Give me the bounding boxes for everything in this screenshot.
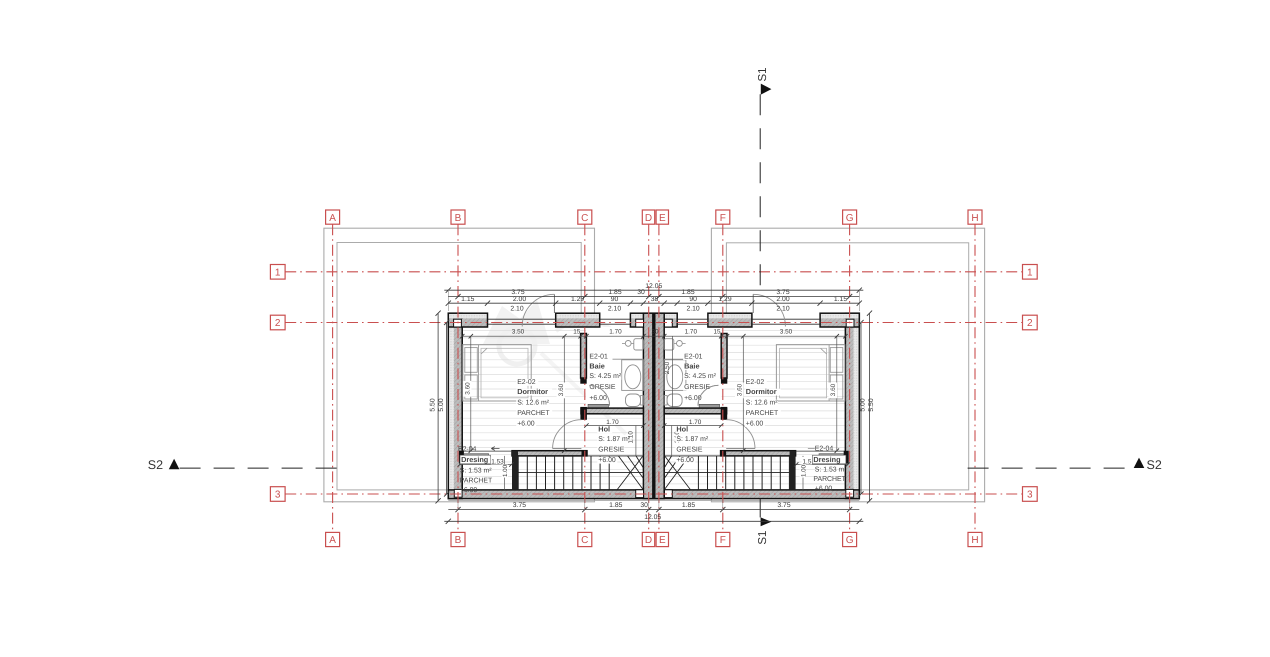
svg-text:90: 90 (611, 296, 619, 303)
svg-text:2.00: 2.00 (776, 296, 789, 303)
svg-text:+6.00: +6.00 (676, 457, 694, 464)
svg-text:3: 3 (275, 490, 281, 501)
svg-text:30: 30 (637, 289, 645, 296)
svg-text:S2: S2 (1147, 458, 1162, 472)
svg-text:+6.00: +6.00 (589, 395, 607, 402)
svg-text:5.00: 5.00 (438, 398, 445, 411)
svg-text:3.60: 3.60 (830, 383, 837, 396)
svg-text:S: 1.87 m²: S: 1.87 m² (598, 436, 630, 443)
svg-text:5.50: 5.50 (868, 398, 875, 411)
svg-text:E2-02: E2-02 (746, 379, 765, 386)
svg-text:Hol: Hol (676, 425, 688, 434)
svg-text:A: A (329, 213, 336, 224)
svg-text:1.85: 1.85 (609, 502, 622, 509)
svg-text:PARCHET: PARCHET (517, 410, 550, 417)
svg-text:D: D (645, 535, 652, 546)
svg-text:2.50: 2.50 (664, 361, 671, 374)
svg-text:2.10: 2.10 (510, 305, 523, 312)
svg-text:S: 12.6 m²: S: 12.6 m² (517, 400, 549, 407)
svg-text:+6.00: +6.00 (517, 420, 535, 427)
svg-text:15: 15 (573, 328, 581, 335)
svg-text:E2-04: E2-04 (458, 446, 477, 453)
svg-text:S2: S2 (148, 458, 163, 472)
svg-text:E: E (659, 535, 666, 546)
svg-text:38: 38 (651, 296, 659, 303)
svg-text:B: B (455, 535, 462, 546)
svg-text:1.70: 1.70 (689, 419, 702, 426)
svg-text:S: 1.87 m²: S: 1.87 m² (676, 436, 708, 443)
svg-text:GRESIE: GRESIE (676, 447, 702, 454)
svg-text:+6.00: +6.00 (598, 457, 616, 464)
svg-text:30: 30 (651, 328, 659, 335)
svg-text:2: 2 (1027, 318, 1033, 329)
svg-text:3.75: 3.75 (777, 502, 790, 509)
svg-text:E2-01: E2-01 (684, 353, 703, 360)
svg-text:S: 1.53 m²: S: 1.53 m² (460, 468, 492, 475)
svg-text:C: C (581, 535, 588, 546)
svg-text:Baie: Baie (589, 361, 604, 370)
svg-text:S: 4.25 m²: S: 4.25 m² (684, 373, 716, 380)
svg-text:3.60: 3.60 (464, 382, 471, 395)
svg-text:E: E (659, 213, 666, 224)
svg-text:H: H (971, 535, 978, 546)
svg-text:2.00: 2.00 (513, 296, 526, 303)
svg-text:1.29: 1.29 (571, 296, 584, 303)
svg-text:3.60: 3.60 (558, 383, 565, 396)
svg-text:S: 1.53 m: S: 1.53 m (815, 467, 845, 474)
svg-text:S: 4.25 m²: S: 4.25 m² (589, 373, 621, 380)
svg-text:PARCHET: PARCHET (746, 410, 779, 417)
svg-text:D: D (645, 213, 652, 224)
svg-text:5.00: 5.00 (860, 398, 867, 411)
svg-text:A: A (329, 535, 336, 546)
svg-text:12.05: 12.05 (644, 514, 661, 521)
svg-text:90: 90 (689, 296, 697, 303)
svg-text:1.15: 1.15 (461, 296, 474, 303)
svg-text:1.53: 1.53 (491, 458, 504, 465)
svg-text:3.50: 3.50 (512, 328, 525, 335)
svg-text:Dormitor: Dormitor (746, 387, 777, 396)
svg-text:F: F (720, 213, 726, 224)
svg-text:GRESIE: GRESIE (598, 447, 624, 454)
svg-text:—E2-04: —E2-04 (808, 446, 833, 453)
svg-text:S: 12.6 m²: S: 12.6 m² (746, 400, 778, 407)
svg-text:E2-01: E2-01 (589, 353, 608, 360)
svg-text:Dormitor: Dormitor (517, 387, 548, 396)
svg-text:1.5: 1.5 (803, 458, 812, 465)
svg-text:1.85: 1.85 (682, 502, 695, 509)
svg-text:Dresing: Dresing (813, 455, 840, 464)
svg-text:1: 1 (1027, 267, 1033, 278)
svg-text:1.70: 1.70 (685, 328, 698, 335)
svg-text:2: 2 (275, 318, 281, 329)
svg-text:+6.00: +6.00 (460, 487, 478, 494)
svg-text:GRESIE: GRESIE (684, 384, 710, 391)
svg-text:B: B (455, 213, 462, 224)
svg-text:Hol: Hol (598, 425, 610, 434)
svg-text:3.50: 3.50 (780, 328, 793, 335)
svg-text:2.10: 2.10 (686, 305, 699, 312)
svg-text:3.60: 3.60 (737, 383, 744, 396)
svg-text:G: G (846, 535, 854, 546)
svg-text:1.00: 1.00 (502, 464, 509, 477)
svg-text:C: C (581, 213, 588, 224)
svg-text:30: 30 (640, 502, 648, 509)
svg-text:1.70: 1.70 (609, 328, 622, 335)
svg-text:5.50: 5.50 (429, 398, 436, 411)
svg-text:3.75: 3.75 (513, 502, 526, 509)
svg-text:2.10: 2.10 (608, 305, 621, 312)
svg-text:1.29: 1.29 (718, 296, 731, 303)
svg-text:+6.00: +6.00 (815, 486, 833, 493)
svg-text:S1: S1 (757, 531, 769, 545)
svg-text:E2-02: E2-02 (517, 379, 536, 386)
svg-text:Dresing: Dresing (461, 455, 488, 464)
svg-text:S1: S1 (757, 67, 769, 81)
svg-text:15: 15 (713, 328, 721, 335)
svg-text:F: F (720, 535, 726, 546)
svg-text:12.05: 12.05 (645, 283, 662, 290)
svg-text:H: H (971, 213, 978, 224)
svg-text:2.10: 2.10 (776, 305, 789, 312)
svg-text:3: 3 (1027, 490, 1033, 501)
svg-text:G: G (846, 213, 854, 224)
svg-text:PARCHET: PARCHET (460, 477, 493, 484)
svg-text:1.00: 1.00 (800, 464, 807, 477)
svg-text:1: 1 (275, 267, 281, 278)
svg-text:Baie: Baie (684, 361, 699, 370)
svg-text:1.15: 1.15 (834, 296, 847, 303)
svg-text:PARCHET: PARCHET (813, 476, 846, 483)
svg-text:+6.00: +6.00 (746, 420, 764, 427)
